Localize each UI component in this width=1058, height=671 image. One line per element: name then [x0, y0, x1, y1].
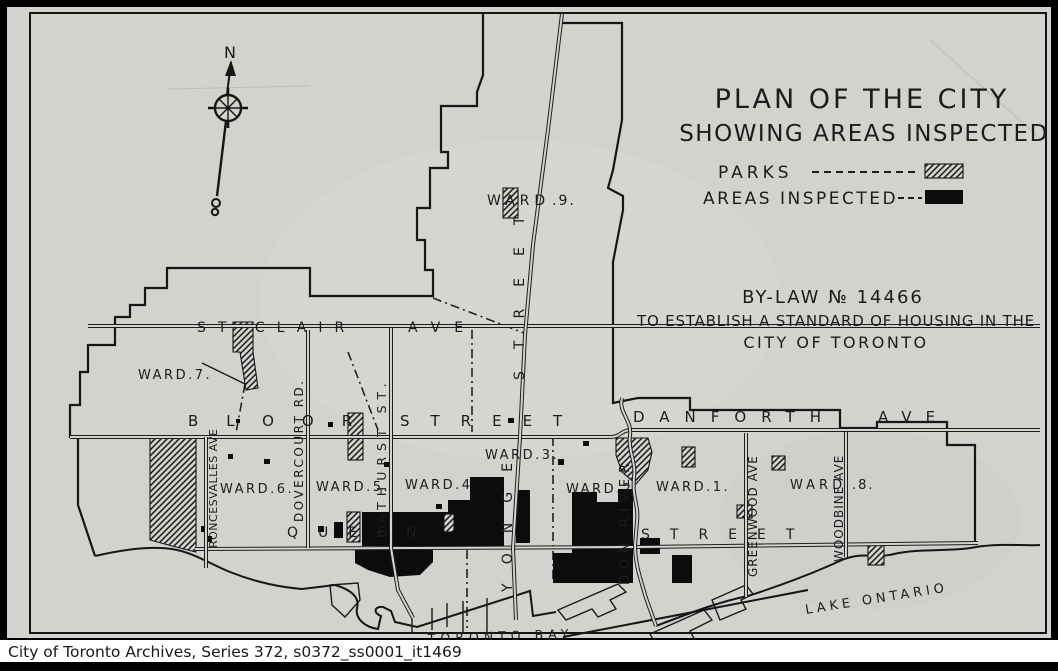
ward-4-label: WARD.4: [405, 478, 472, 493]
high-park: [150, 437, 196, 552]
woodbine-label: WOODBINE AVE: [832, 455, 846, 562]
queen-street-label: STREET: [641, 527, 814, 543]
dovercourt-label: DOVERCOURT RD.: [292, 378, 306, 522]
legend-areas-label: AREAS INSPECTED: [703, 189, 898, 209]
ward-9-number: .9.: [552, 193, 576, 209]
archive-caption: City of Toronto Archives, Series 372, s0…: [8, 643, 462, 662]
legend-parks-label: PARKS: [718, 163, 793, 183]
ward-3-label: WARD.3.: [485, 448, 559, 463]
map-title-line2: SHOWING AREAS INSPECTED: [679, 121, 1049, 147]
toronto-inspection-map: N PLAN OF THE CITY SHOWING AREAS INSPECT…: [0, 0, 1058, 671]
bloor-street-label: STREET: [400, 412, 583, 430]
roncesvalles-label: RONCESVALLES AVE: [207, 429, 220, 548]
bylaw-line2: TO ESTABLISH A STANDARD OF HOUSING IN TH…: [636, 312, 1035, 330]
queen-label: QUEEN: [287, 525, 436, 541]
bylaw-line1: BY-LAW № 14466: [742, 287, 924, 308]
greenwood-label: GREENWOOD AVE: [746, 455, 760, 577]
yonge-street-label: STREET: [512, 195, 528, 380]
bloor-label: BLOOR: [188, 412, 380, 430]
map-title-line1: PLAN OF THE CITY: [715, 84, 1010, 115]
ward-8-number: .8.: [852, 478, 875, 493]
ward-6-label: WARD.6.: [220, 482, 294, 497]
bathurst-label: BATHURST ST.: [374, 377, 389, 538]
danforth-label: DANFORTH: [633, 408, 836, 426]
st-clair-ave-label: AVE: [408, 320, 477, 336]
legend-parks-swatch: [925, 164, 963, 178]
st-clair-label: ST CLAIR: [197, 320, 356, 336]
yonge-label: YONGE: [500, 443, 516, 593]
archival-map-scan: N PLAN OF THE CITY SHOWING AREAS INSPECT…: [0, 0, 1058, 671]
legend-areas-swatch: [925, 190, 963, 204]
bylaw-line3: CITY OF TORONTO: [743, 333, 928, 352]
ward-1-label: WARD.1.: [656, 480, 730, 495]
compass-north-label: N: [224, 43, 236, 62]
don-river-label: DON RIVER: [618, 458, 633, 585]
danforth-ave-label: AVE: [878, 408, 949, 426]
ward-7-label: WARD.7.: [138, 368, 212, 383]
